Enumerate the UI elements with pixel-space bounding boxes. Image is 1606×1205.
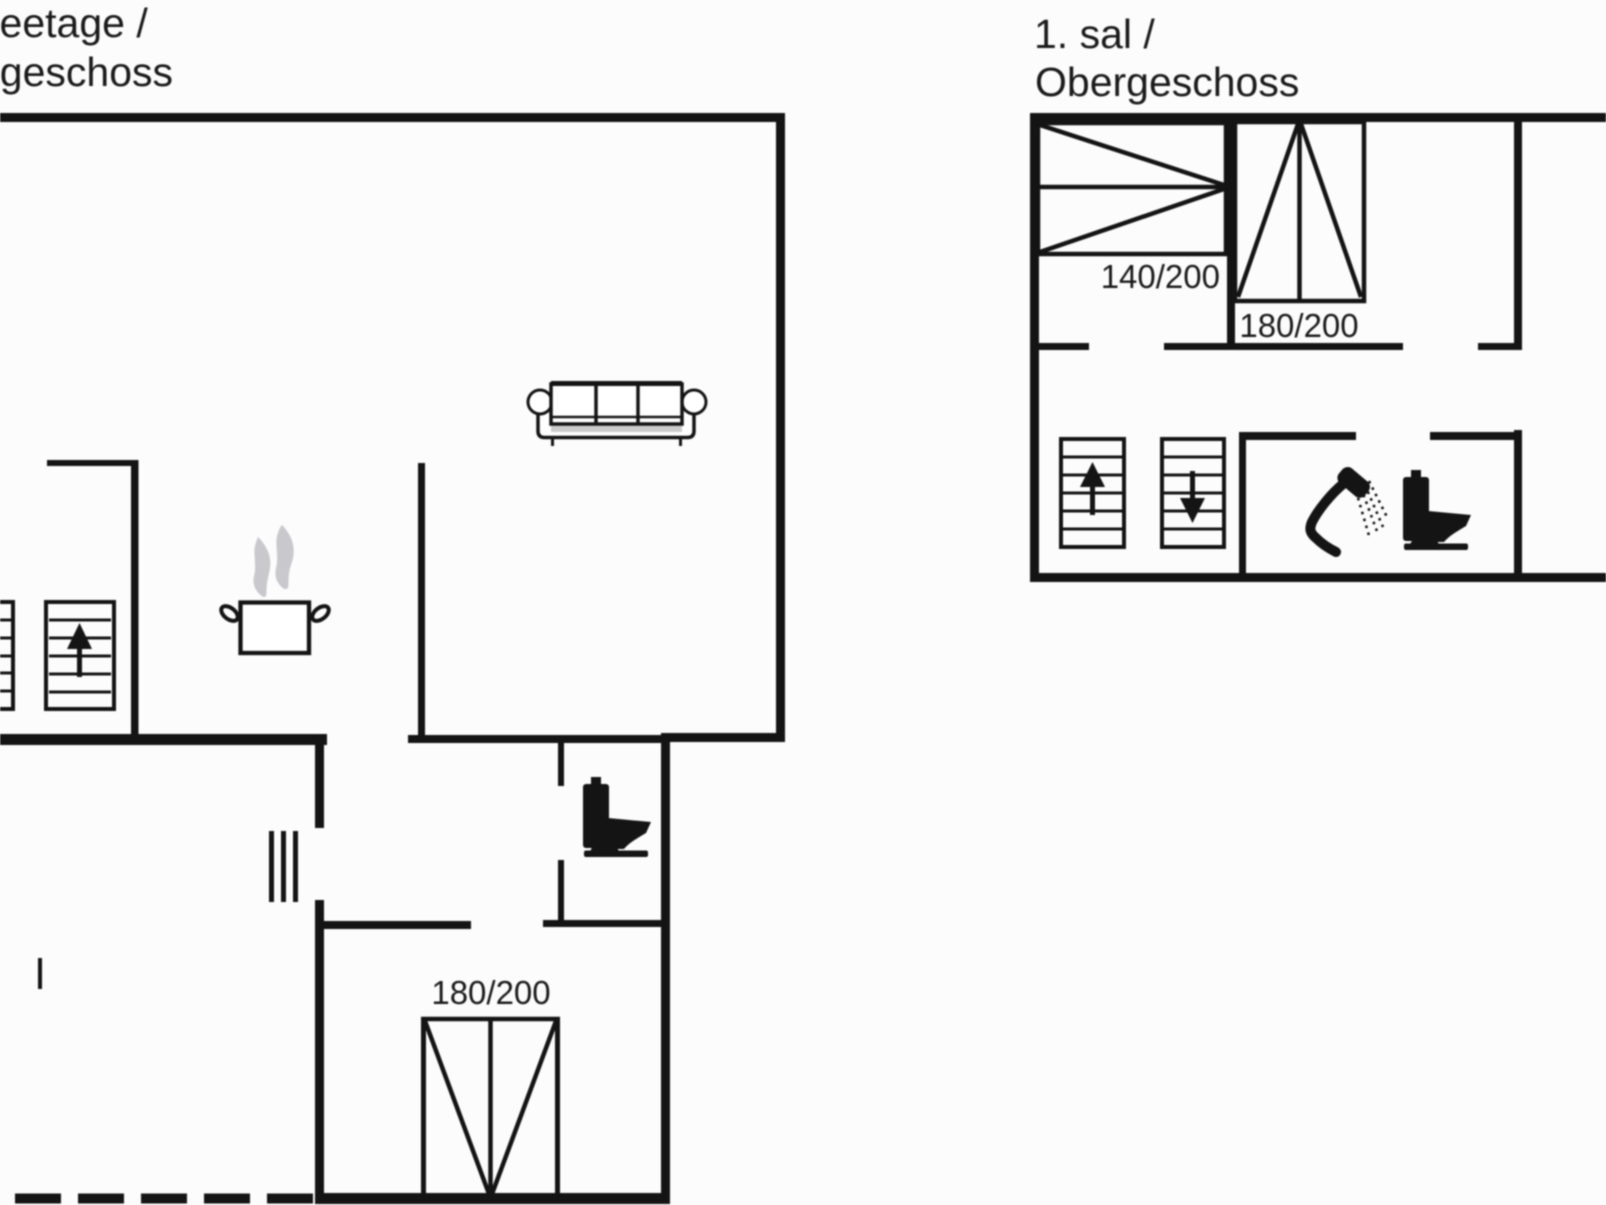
svg-text:140/200: 140/200 — [1101, 258, 1220, 295]
svg-text:Obergeschoss: Obergeschoss — [1035, 59, 1299, 105]
svg-text:Stueetage /: Stueetage / — [0, 0, 148, 46]
svg-text:1. sal /: 1. sal / — [1034, 11, 1155, 57]
svg-text:180/200: 180/200 — [1239, 307, 1358, 344]
svg-text:Erdgeschoss: Erdgeschoss — [0, 49, 173, 95]
svg-text:180/200: 180/200 — [431, 974, 550, 1011]
